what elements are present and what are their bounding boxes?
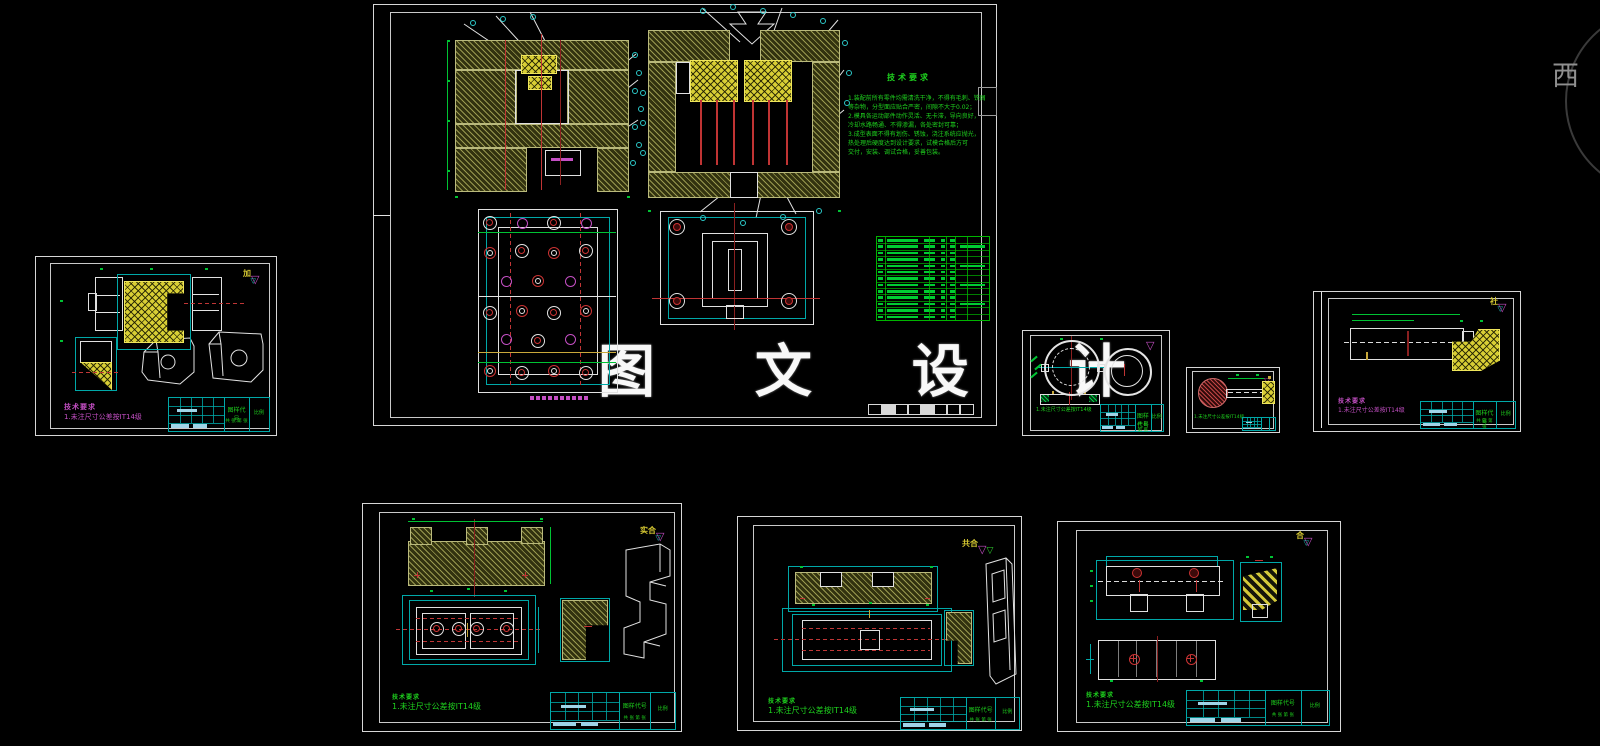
bom-cell-text	[878, 271, 882, 274]
bom-cell-text	[878, 290, 882, 293]
rline-shape	[1196, 580, 1197, 592]
yline-shape	[1366, 352, 1368, 360]
bom-cell-text	[887, 271, 918, 274]
rline-shape	[1124, 364, 1125, 376]
note-line: 1.未注尺寸公差按IT14级	[1036, 406, 1092, 413]
tb-divider	[1261, 418, 1262, 430]
tb-filled-cell	[171, 424, 189, 428]
gtick-shape	[800, 566, 803, 568]
note-line: 1.未注尺寸公差按IT14级	[1086, 699, 1175, 710]
bom-cell-text	[878, 303, 882, 306]
bom-cell-text	[941, 290, 945, 293]
hred-shape	[1198, 378, 1228, 408]
holive-shape	[760, 30, 840, 62]
gtick-shape	[150, 268, 153, 270]
corner-logo-ring	[1565, 8, 1600, 194]
dot-shape	[844, 100, 850, 106]
yline-shape	[869, 610, 870, 618]
tb-filled-cell	[910, 708, 934, 711]
gtick-shape	[1090, 600, 1093, 602]
holive-shape	[795, 572, 932, 604]
gline-shape	[1352, 314, 1460, 315]
gtick-shape	[1480, 320, 1483, 322]
cyline-shape	[538, 607, 539, 653]
tb-grid-line	[1121, 405, 1122, 425]
rline-shape	[1139, 580, 1140, 592]
triangle-logo-inner-icon: ▽	[655, 534, 660, 542]
tb-grid-line	[202, 398, 203, 423]
wline-shape	[1118, 641, 1119, 677]
gtick-shape	[1090, 570, 1093, 572]
dot-shape	[846, 70, 852, 76]
hgreen-shape	[1041, 395, 1049, 402]
gtick-shape	[60, 340, 63, 342]
wbox-shape	[1186, 594, 1204, 612]
note-line: 1.未注尺寸公差按IT14级	[768, 705, 857, 716]
tb-grid-line	[169, 415, 224, 416]
bom-cell-text	[887, 252, 918, 255]
bom-cell-text	[941, 245, 945, 248]
dot-shape	[780, 214, 786, 220]
tb-field-extra: 共 张 第 张	[1136, 421, 1150, 433]
bom-cell-text	[924, 252, 935, 255]
holive-shape	[648, 30, 730, 62]
wbox-shape	[820, 572, 842, 587]
gtick-shape	[869, 602, 872, 604]
rline-shape	[1255, 560, 1263, 561]
tb-filled-cell	[1429, 410, 1448, 413]
wbox-shape	[1130, 594, 1148, 612]
tb-grid-line	[901, 714, 966, 715]
bom-cell-text	[878, 296, 882, 299]
gline-shape	[447, 40, 448, 190]
circle-shape	[1111, 355, 1143, 387]
cyline-shape	[1106, 556, 1107, 566]
wline-shape	[478, 296, 616, 297]
tb-grid-line	[213, 398, 214, 423]
bom-cell-text	[887, 296, 918, 299]
tb-divider	[1265, 691, 1266, 725]
bom-cell-text	[960, 303, 985, 306]
gtick-shape	[1110, 680, 1113, 682]
bom-cell-text	[941, 258, 945, 261]
bom-cell-text	[878, 265, 882, 268]
tb-field-scale: 比例	[1497, 410, 1514, 417]
holive-shape	[455, 148, 527, 192]
cyline-shape	[1106, 556, 1218, 557]
path	[986, 558, 1016, 684]
holive-shape	[567, 70, 629, 124]
holive-shape	[812, 62, 840, 172]
tb-field-scale: 比例	[651, 705, 673, 712]
dot-shape	[740, 220, 746, 226]
gtick-shape	[430, 590, 433, 592]
path	[209, 332, 223, 376]
note-line: 1.未注尺寸公差按IT14级	[392, 701, 481, 712]
gline-shape	[478, 232, 616, 233]
tb-grid-line	[551, 702, 619, 703]
gline-shape	[1352, 320, 1414, 321]
circle-shape	[565, 276, 576, 287]
holive-shape	[521, 527, 543, 544]
gtick-shape	[648, 210, 651, 212]
wbox-shape	[726, 305, 744, 319]
circle-shape	[551, 250, 557, 256]
holive-shape	[648, 62, 676, 172]
gtick-shape	[1100, 338, 1103, 340]
drline-shape	[1407, 331, 1409, 356]
circle-shape	[1132, 568, 1142, 578]
gtick-shape	[447, 80, 450, 82]
rline-shape	[505, 40, 506, 190]
tb-divider	[619, 693, 620, 729]
bom-cell-text	[878, 258, 882, 261]
iso-view-tall-plate	[976, 554, 1020, 688]
dashw-shape	[1098, 581, 1226, 582]
dashr-shape	[802, 628, 930, 629]
dashw-shape	[1228, 392, 1266, 393]
tb-field-extra: 共 张 第 张	[620, 715, 649, 721]
drline-shape	[474, 519, 475, 597]
path	[992, 570, 1005, 602]
bom-cell-text	[878, 239, 882, 242]
wbox-shape	[1252, 604, 1268, 618]
rline-shape	[417, 572, 418, 578]
gtick-shape	[1460, 320, 1463, 322]
stamp-part-core: 加▽▽	[243, 268, 256, 287]
tb-filled-cell	[1190, 718, 1216, 722]
wbox-shape	[728, 249, 742, 291]
bom-cell-text	[924, 271, 935, 274]
bom-cell-text	[941, 309, 945, 312]
holive-shape	[455, 124, 629, 148]
tb-grid-line	[1452, 402, 1453, 422]
bom-cell-text	[941, 303, 945, 306]
gtick-shape	[1060, 338, 1063, 340]
circle-shape	[551, 368, 557, 374]
tb-field-extra: 共 张 第 张	[967, 717, 994, 723]
tb-grid-line	[551, 711, 619, 712]
bom-cell-text	[878, 245, 882, 248]
circle-shape	[486, 219, 493, 226]
gtick-shape	[60, 300, 63, 302]
drline-shape	[560, 40, 561, 185]
holive-shape	[455, 70, 517, 124]
tb-grid-line	[1257, 418, 1258, 427]
dashr-shape	[416, 618, 520, 619]
gtick-shape	[467, 588, 470, 590]
triangle-logo-inner-icon: ▽	[1303, 539, 1308, 547]
tb-filled-cell	[1444, 423, 1457, 426]
hgreen-shape	[1089, 395, 1097, 402]
bom-cell-text	[960, 265, 985, 268]
circle-shape	[673, 297, 681, 305]
note-title: 技术要求	[64, 402, 96, 412]
bom-cell-text	[941, 239, 945, 242]
tb-field-extra: 共 张 第 张	[1267, 712, 1300, 718]
circle-shape	[785, 223, 793, 231]
bom-cell-text	[878, 252, 882, 255]
dot-shape	[500, 16, 506, 22]
circle-shape	[486, 309, 493, 316]
tb-grid-line	[1249, 691, 1250, 717]
tb-field-main: 图样代号	[620, 701, 649, 710]
circle-shape	[501, 334, 512, 345]
circle-shape	[673, 223, 681, 231]
wline-shape	[193, 310, 219, 311]
wbox-shape	[545, 150, 581, 176]
tb-field-main: 图样代号	[1267, 698, 1300, 707]
circle-shape	[550, 219, 557, 226]
circle-shape	[583, 308, 589, 314]
tb-filled-cell	[561, 705, 586, 709]
bom-cell-text	[887, 316, 918, 319]
bom-cell-text	[924, 265, 935, 268]
tb-field-extra: 共 张 第 张	[1474, 418, 1496, 430]
bom-cell-text	[924, 277, 935, 280]
gtick-shape	[1246, 556, 1249, 558]
gtick-shape	[1200, 680, 1203, 682]
wline-shape	[1176, 641, 1177, 677]
dashrv-shape	[510, 213, 511, 387]
yline-shape	[1052, 391, 1054, 394]
bom-cell-text	[887, 245, 918, 248]
bom-cell-text	[924, 309, 935, 312]
hyellow-shape	[528, 76, 552, 90]
tb-grid-line	[953, 698, 954, 721]
gtick-shape	[926, 604, 929, 606]
title-block: 图样代号比例共 张 第 张	[900, 697, 1020, 730]
wbox-shape	[192, 277, 222, 331]
dashr-shape	[802, 650, 930, 651]
circle-shape	[433, 625, 440, 632]
tb-grid-line	[606, 693, 607, 720]
circle-shape	[581, 218, 592, 229]
circle-shape	[1186, 654, 1197, 665]
stamp-text: 实合	[640, 526, 656, 535]
dot-shape	[632, 124, 638, 130]
note-title: 技术要求	[392, 692, 420, 701]
dashr-shape	[416, 641, 520, 642]
wbox-shape	[730, 172, 758, 198]
gtick-shape	[447, 40, 450, 42]
dot-shape	[820, 18, 826, 24]
bom-cell-text	[887, 303, 918, 306]
dot-shape	[640, 90, 646, 96]
bom-cell-text	[924, 290, 935, 293]
circle-shape	[455, 625, 462, 632]
hyellow-shape	[690, 60, 738, 102]
bom-cell-text	[941, 296, 945, 299]
tb-grid-line	[1421, 415, 1473, 416]
dot-shape	[636, 142, 642, 148]
rline-shape	[786, 100, 788, 165]
dashrv-shape	[580, 213, 581, 387]
bom-cell-text	[887, 258, 918, 261]
circle-shape	[785, 297, 793, 305]
note-line: 1.未注尺寸公差按IT14级	[64, 412, 142, 422]
bom-cell-text	[941, 316, 945, 319]
tb-filled-cell	[581, 722, 598, 726]
circle-shape	[519, 308, 525, 314]
dot-shape	[640, 120, 646, 126]
stamp-text: 共合	[962, 539, 978, 548]
binding-tick	[373, 215, 390, 216]
title-block: 图样代号比例共 张 第 张	[1420, 401, 1516, 429]
tb-divider	[1269, 418, 1270, 430]
circle-shape	[518, 369, 525, 376]
bom-cell-text	[960, 245, 985, 248]
tb-grid-line	[1254, 418, 1255, 427]
bom-cell-text	[887, 309, 918, 312]
bom-cell-text	[878, 284, 882, 287]
dot-shape	[630, 160, 636, 166]
rline-shape	[541, 34, 542, 190]
circle-shape	[1052, 348, 1090, 386]
dot-shape	[790, 12, 796, 18]
circle-shape	[503, 625, 510, 632]
dashr-shape	[184, 303, 246, 304]
circle-shape	[517, 218, 528, 229]
gtick-shape	[627, 196, 630, 198]
stamp-part-slide: 合▽▽	[1296, 530, 1309, 549]
dot-shape	[632, 52, 638, 58]
tb-field-scale: 比例	[250, 409, 268, 416]
bom-cell-text	[924, 239, 935, 242]
bom-cell-text	[878, 309, 882, 312]
rline-shape	[752, 100, 754, 165]
tb-grid-line	[940, 698, 941, 721]
dot-shape	[638, 106, 644, 112]
tb-filled-cell	[1116, 426, 1125, 429]
gtick-shape	[455, 196, 458, 198]
circle-shape	[534, 337, 541, 344]
holive-shape	[597, 148, 629, 192]
gtick-shape	[930, 566, 933, 568]
gtick-shape	[504, 590, 507, 592]
tb-filled-cell	[1221, 718, 1241, 722]
tb-field-main: 图样代号	[967, 705, 994, 714]
tb-filled-cell	[1106, 413, 1118, 416]
tb-filled-cell	[1244, 428, 1250, 429]
rline-shape	[768, 100, 770, 165]
gline-shape	[478, 362, 616, 363]
title-block: 图样代号比例共 张 第 张	[168, 397, 270, 432]
title-block: 图样代号比例共 张 第 张	[1186, 690, 1330, 726]
gtick-shape	[447, 170, 450, 172]
dot-shape	[842, 40, 848, 46]
circle-shape	[518, 247, 525, 254]
triangle-logo-inner-icon: ▽	[1497, 305, 1502, 313]
gtick-shape	[812, 604, 815, 606]
dot-shape	[700, 215, 706, 221]
note-title: 技术要求	[768, 696, 796, 705]
bom-cell-text	[941, 271, 945, 274]
dot-shape	[760, 8, 766, 14]
bom-grid-line	[955, 237, 956, 320]
rline-shape	[584, 626, 592, 627]
hyellow-shape	[521, 55, 557, 74]
tb-filled-cell	[1251, 428, 1255, 429]
tb-filled-cell	[1198, 702, 1226, 705]
path	[209, 332, 263, 382]
note-title: 技术要求	[1086, 690, 1114, 699]
bom-grid-line	[885, 237, 886, 320]
cyline-shape	[1217, 556, 1218, 566]
bom-cell-text	[941, 252, 945, 255]
dot-shape	[530, 14, 536, 20]
bom-cell-text	[941, 277, 945, 280]
note-title: 技术要求	[1338, 396, 1366, 405]
drawing-number-label	[530, 396, 588, 400]
gtick-shape	[447, 120, 450, 122]
bom-cell-text	[924, 258, 935, 261]
tb-field-extra: 共 张 第 张	[225, 418, 248, 424]
circle-shape	[1129, 654, 1140, 665]
iso-view-bracket-2	[203, 326, 267, 386]
circle-shape	[501, 276, 512, 287]
tb-grid-line	[901, 706, 966, 707]
corner-logo-char: 西	[1552, 54, 1579, 93]
ruler-cell	[959, 404, 974, 415]
tb-filled-cell	[929, 723, 946, 727]
wbox-shape	[80, 341, 112, 363]
circle-shape	[582, 247, 589, 254]
rline-shape	[716, 100, 718, 165]
bom-cell-text	[887, 277, 918, 280]
gtick-shape	[1236, 374, 1239, 376]
dashr-shape	[396, 629, 540, 630]
tb-field-scale: 比例	[1151, 413, 1162, 420]
wbox-shape	[88, 293, 97, 311]
circle-shape	[473, 625, 480, 632]
hyellow-shape	[744, 60, 792, 102]
tb-grid-line	[1128, 405, 1129, 425]
stamp-part-plate: 社▽▽	[1490, 296, 1503, 315]
tb-grid-line	[1462, 402, 1463, 422]
bom-cell-text	[960, 284, 985, 287]
yline-shape	[478, 352, 616, 353]
bom-grid-line	[946, 237, 947, 320]
tb-filled-cell	[1423, 423, 1440, 426]
wbox-shape	[676, 62, 690, 94]
holive-shape	[410, 527, 432, 545]
wbox-shape	[872, 572, 894, 587]
circle-shape	[582, 369, 589, 376]
bom-cell-text	[887, 284, 918, 287]
gline-shape	[408, 521, 543, 522]
holive-shape	[466, 527, 488, 545]
path	[993, 610, 1006, 642]
gtick-shape	[412, 518, 415, 520]
rline-shape	[700, 100, 702, 165]
tb-filled-cell	[1102, 426, 1113, 429]
gtick-shape	[1256, 374, 1259, 376]
gtick-shape	[100, 268, 103, 270]
bom-cell-text	[924, 284, 935, 287]
hyellow-shape	[1262, 381, 1275, 404]
circle-shape	[1189, 568, 1199, 578]
bom-grid-line	[967, 237, 968, 320]
bom-cell-text	[887, 265, 918, 268]
dot-shape	[700, 8, 706, 14]
circle	[231, 350, 247, 366]
rline-shape	[925, 598, 930, 599]
rline-shape	[525, 572, 526, 578]
title-block: 图样代号比例共 张 第 张	[1100, 404, 1164, 432]
bom-cell-text	[878, 316, 882, 319]
dot-shape	[730, 4, 736, 10]
